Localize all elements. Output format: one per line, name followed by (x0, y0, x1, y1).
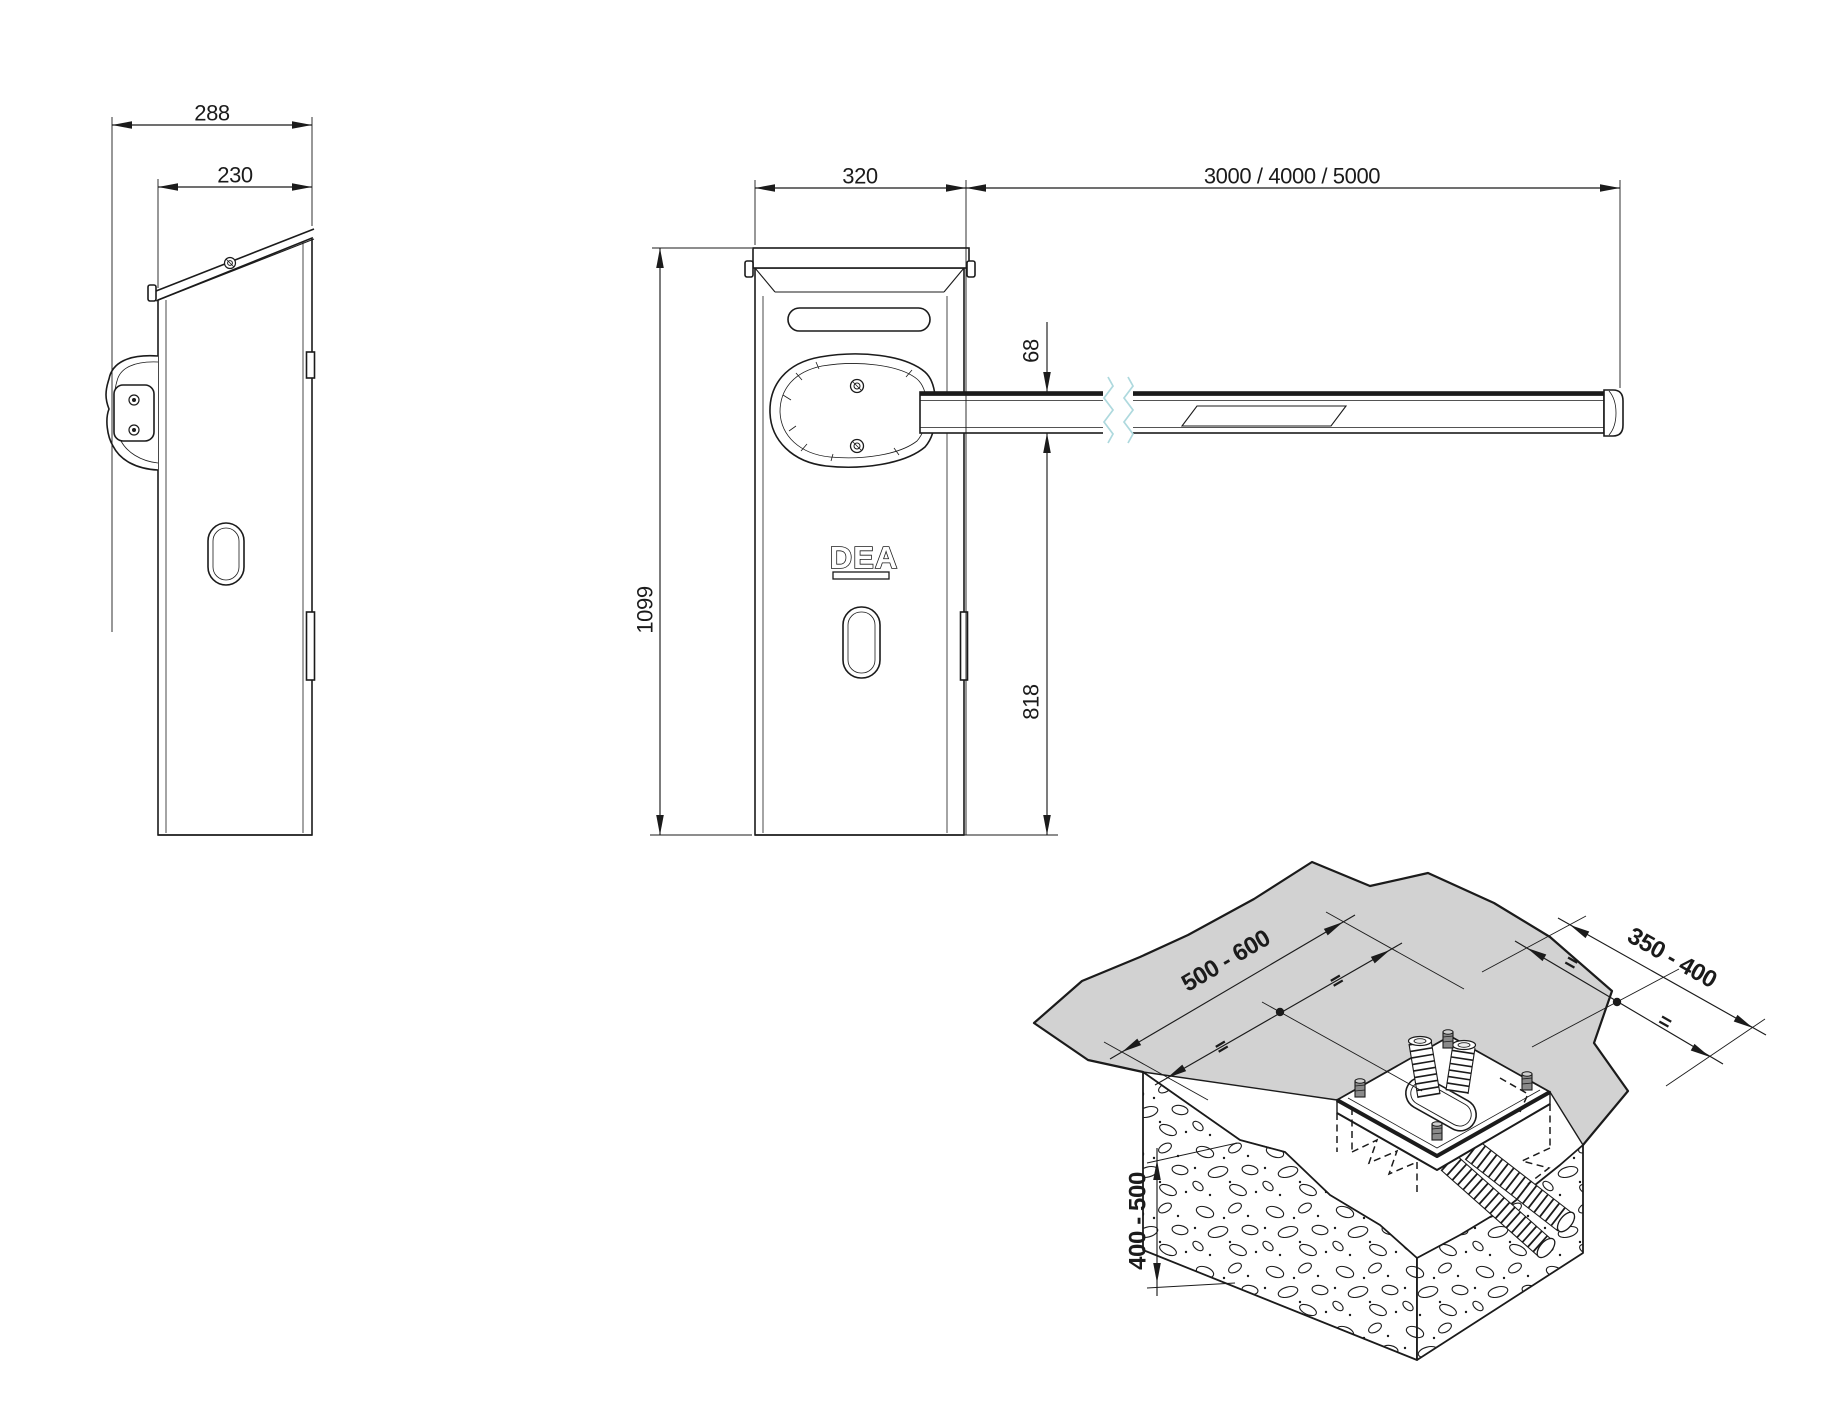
brand-logo: DEA (830, 540, 898, 579)
front-handle (843, 607, 880, 678)
arm-break-icon (1103, 377, 1133, 444)
bracket-screw-icon (129, 425, 139, 435)
anchor-bolt-icon (1432, 1122, 1442, 1140)
front-view: DEA (633, 164, 1624, 836)
side-handle (208, 523, 244, 585)
dim-label-320: 320 (842, 164, 878, 189)
arm-end-cap (1604, 390, 1623, 436)
dim-arm-clearance: 818 (958, 433, 1058, 835)
pivot-screw-icon (851, 440, 864, 453)
side-view: 288 230 (106, 101, 315, 836)
cap-screw-icon (225, 258, 236, 269)
dim-label-230: 230 (217, 163, 253, 188)
dim-arm-length: 3000 / 4000 / 5000 (966, 164, 1620, 389)
anchor-bolt-icon (1443, 1030, 1453, 1048)
drawing-page: 288 230 (0, 0, 1840, 1422)
anchor-bolt-icon (1355, 1079, 1365, 1097)
anchor-bolt-icon (1522, 1072, 1532, 1090)
dim-total-height: 1099 (633, 248, 753, 835)
side-hinge (307, 612, 315, 680)
dim-label-1099: 1099 (633, 586, 658, 634)
side-hinge (307, 352, 315, 378)
dim-label-288: 288 (194, 101, 230, 126)
dim-label-350-400: 350 - 400 (1623, 922, 1722, 994)
dim-label-400-500: 400 - 500 (1125, 1172, 1152, 1270)
equal-mark: = (1654, 1009, 1676, 1035)
pivot-cover (770, 354, 935, 467)
side-pivot-bracket (106, 356, 158, 470)
flasher-slot (788, 308, 930, 331)
foundation-view: = = 500 - 600 = = 350 - 400 (1034, 862, 1766, 1360)
dim-arm-profile-height: 68 (1019, 322, 1051, 392)
dim-label-arm-lengths: 3000 / 4000 / 5000 (1204, 164, 1380, 189)
dim-label-68: 68 (1019, 339, 1044, 363)
drawing-canvas: 288 230 (0, 0, 1840, 1422)
boom-arm (920, 377, 1623, 444)
dim-label-818: 818 (1019, 684, 1044, 720)
logo-text: DEA (830, 540, 898, 575)
pivot-screw-icon (851, 380, 864, 393)
bracket-screw-icon (129, 395, 139, 405)
